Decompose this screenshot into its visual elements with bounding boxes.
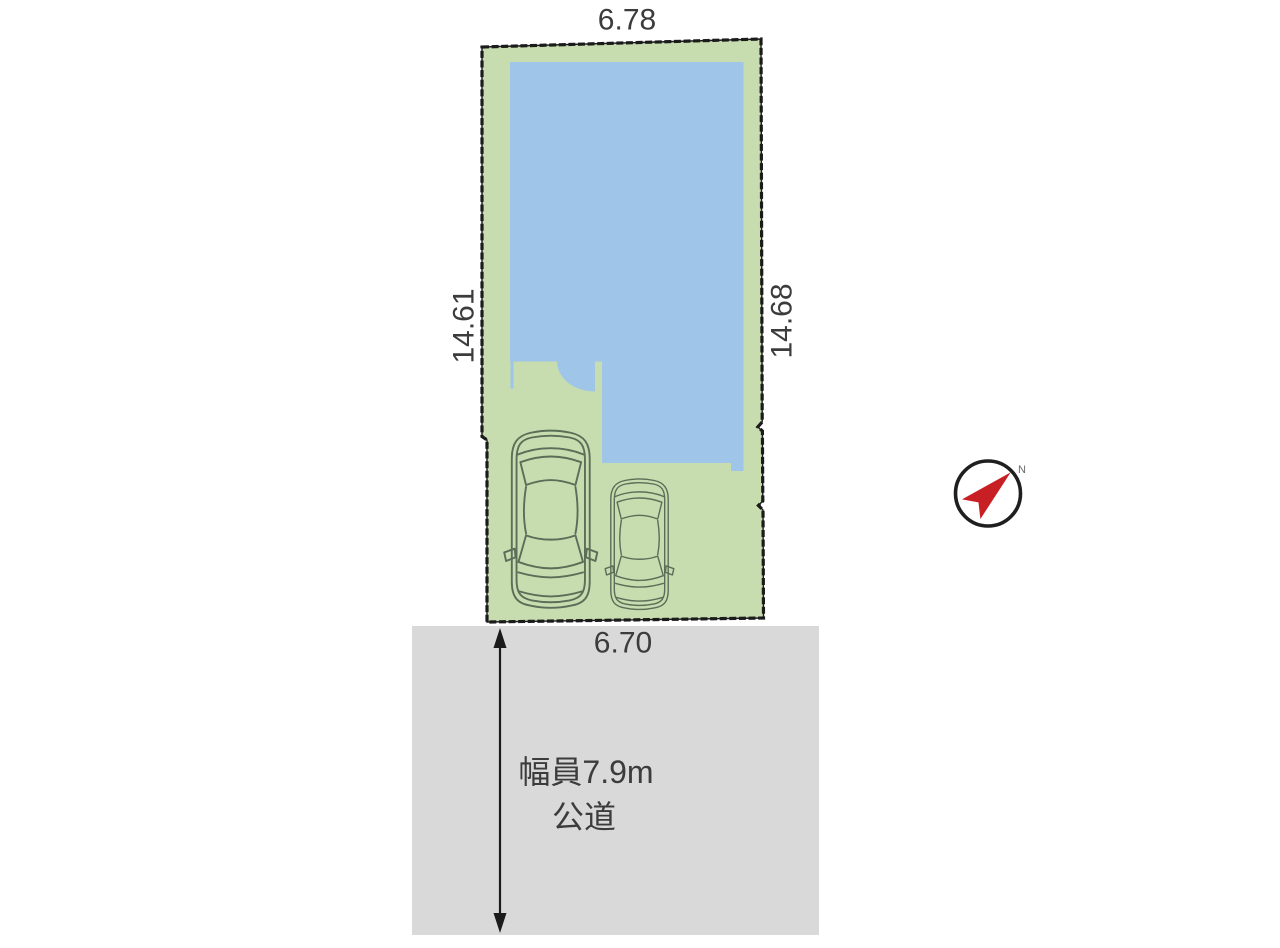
north-label: N bbox=[1018, 464, 1026, 476]
dimension-top-width: 6.78 bbox=[598, 4, 656, 37]
road-width-label: 幅員7.9m bbox=[518, 754, 653, 790]
compass: N bbox=[956, 461, 1027, 526]
entrance-wall-slit bbox=[511, 362, 514, 389]
dimension-frontage: 6.70 bbox=[594, 627, 652, 660]
dimension-right-depth: 14.68 bbox=[766, 283, 799, 358]
entrance-door-leaf bbox=[595, 362, 599, 392]
site-plan-canvas: 6.78 14.61 14.68 6.70 幅員7.9m 公道 N bbox=[0, 0, 1280, 948]
dimension-left-depth: 14.61 bbox=[448, 288, 481, 363]
site-plan-page: 6.78 14.61 14.68 6.70 幅員7.9m 公道 N bbox=[0, 0, 1280, 948]
road-type-label: 公道 bbox=[552, 799, 616, 835]
